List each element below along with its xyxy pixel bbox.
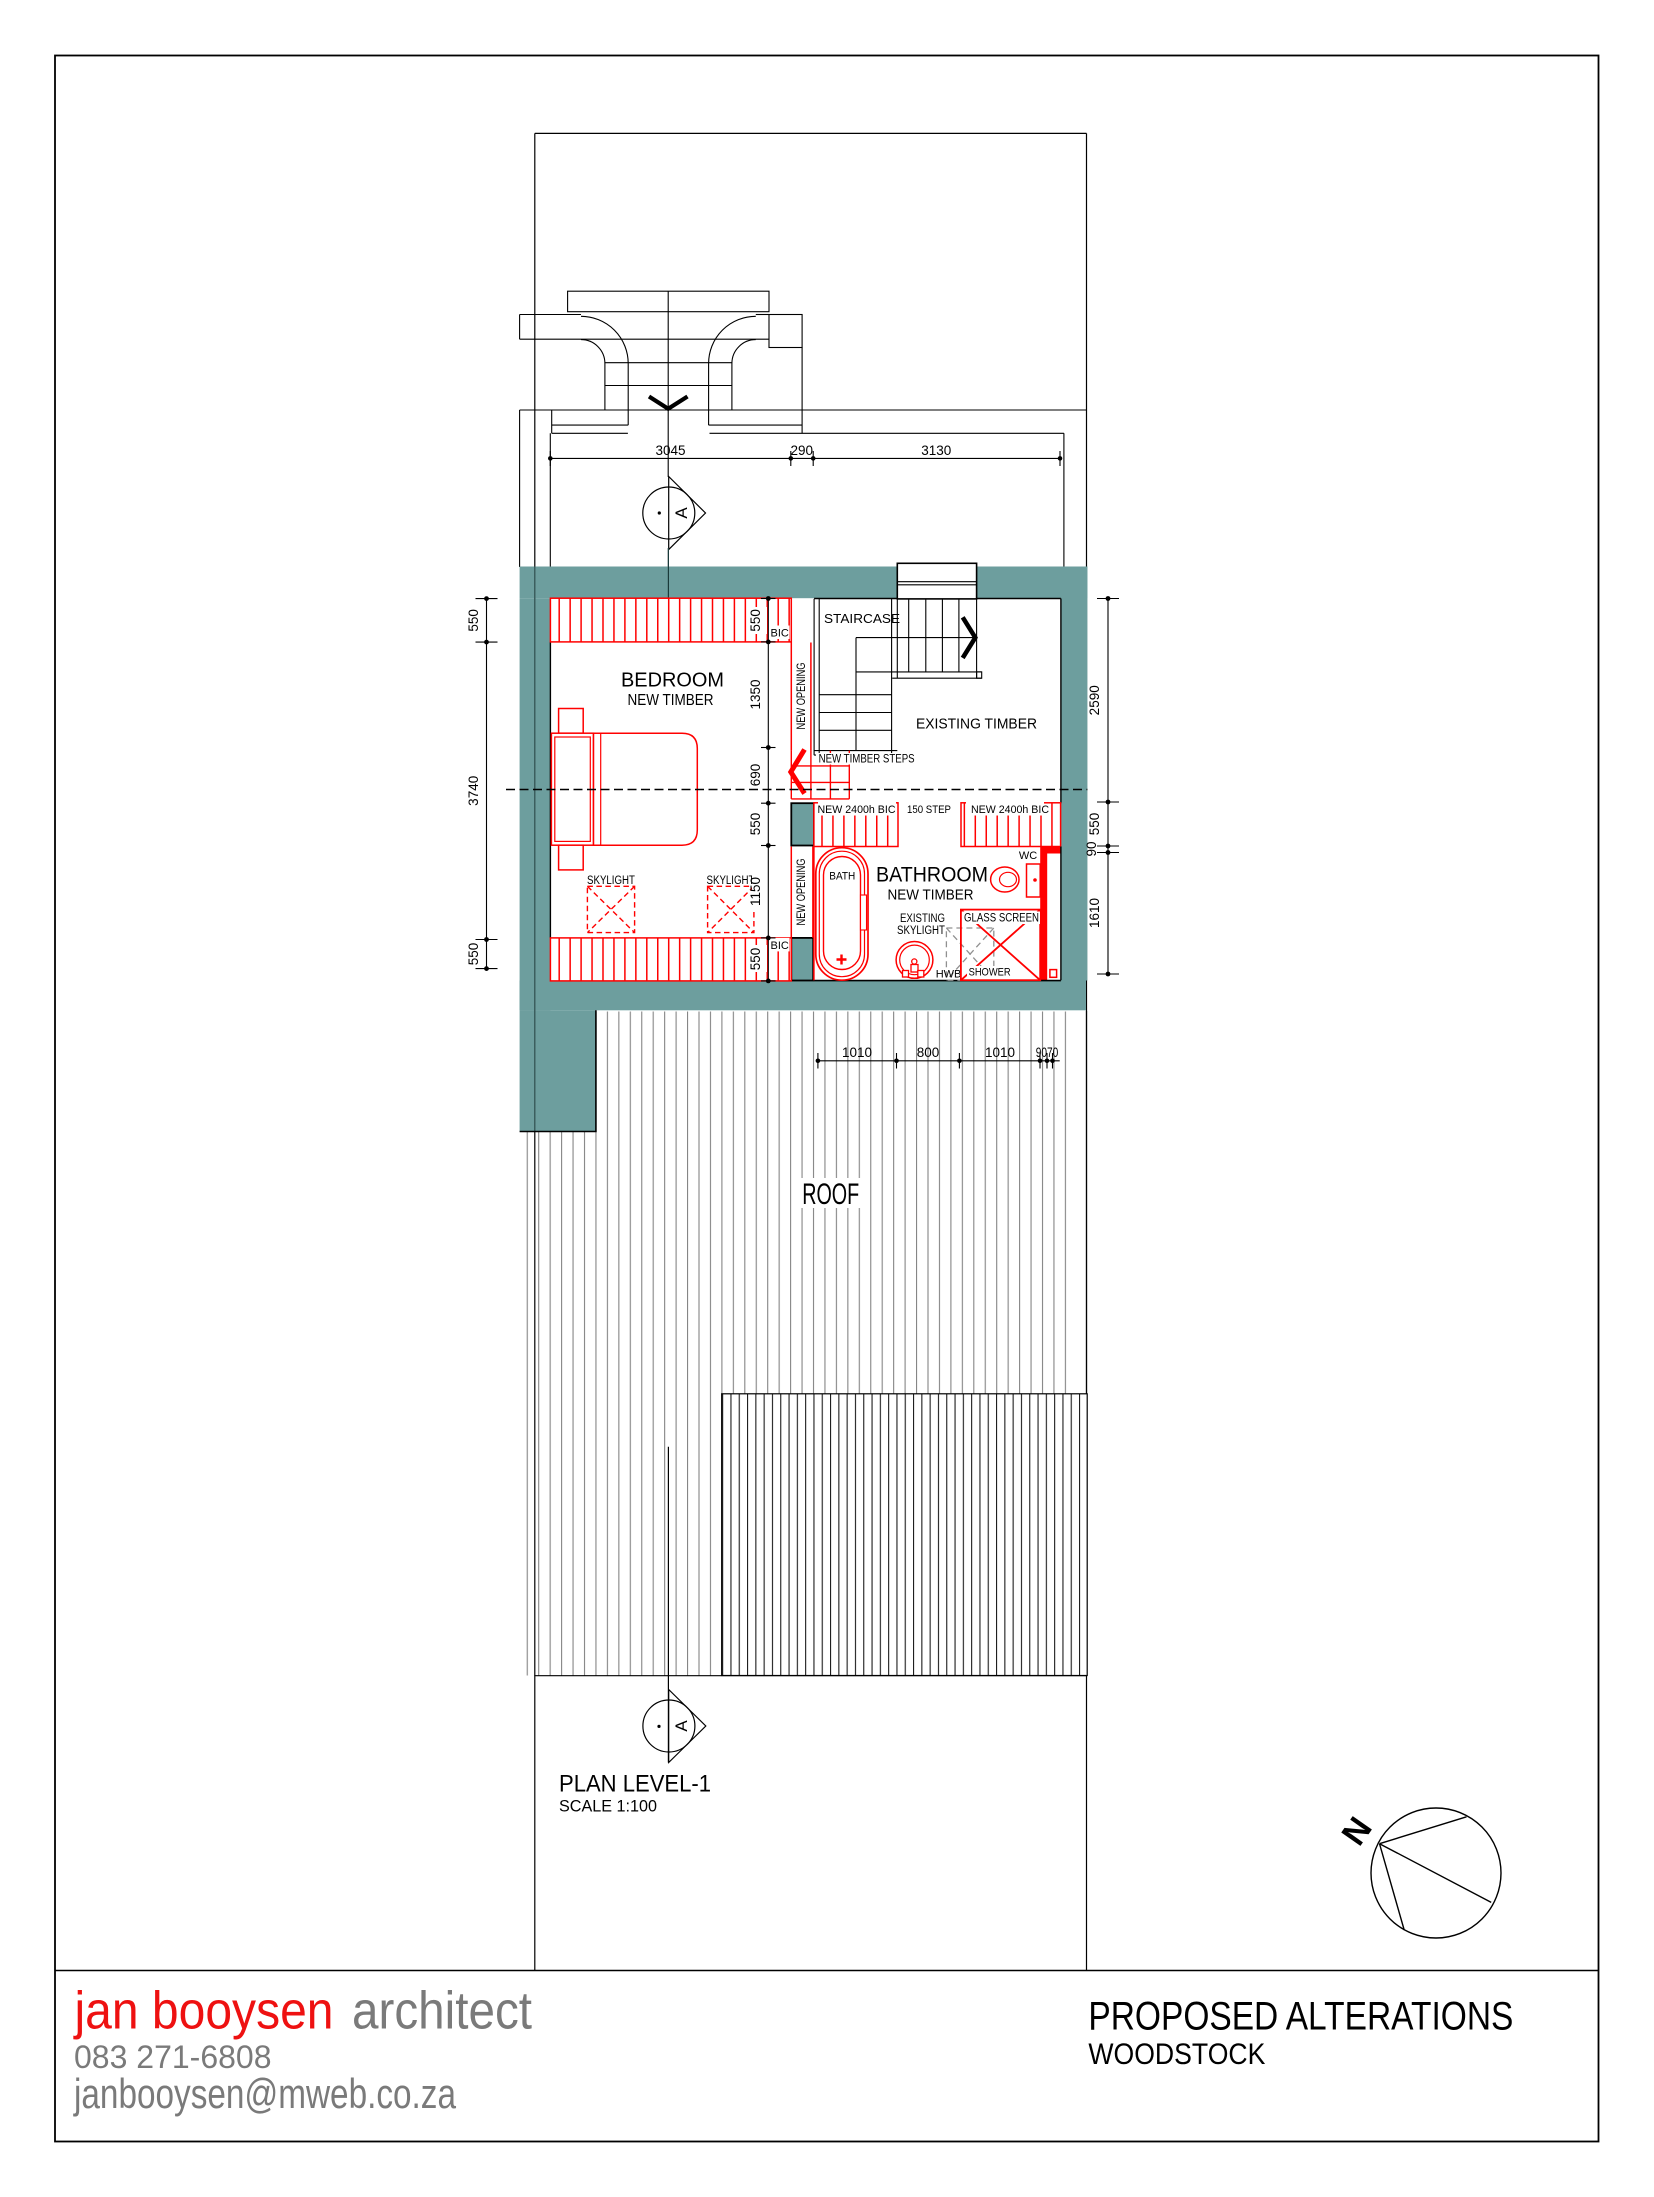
svg-text:SHOWER: SHOWER — [969, 967, 1011, 979]
svg-text:1610: 1610 — [1087, 898, 1102, 928]
svg-text:550: 550 — [1087, 813, 1102, 836]
svg-text:PLAN LEVEL-1: PLAN LEVEL-1 — [559, 1771, 711, 1798]
svg-text:550: 550 — [466, 943, 481, 966]
svg-text:jan booysen: jan booysen — [73, 1982, 334, 2041]
svg-text:290: 290 — [791, 443, 814, 458]
svg-text:PROPOSED ALTERATIONS: PROPOSED ALTERATIONS — [1088, 1995, 1513, 2039]
svg-text:NEW TIMBER STEPS: NEW TIMBER STEPS — [819, 754, 915, 766]
svg-text:SKYLIGHT: SKYLIGHT — [897, 925, 945, 937]
svg-text:550: 550 — [748, 609, 763, 632]
svg-text:550: 550 — [748, 948, 763, 971]
svg-text:90: 90 — [1084, 841, 1099, 856]
svg-text:EXISTING TIMBER: EXISTING TIMBER — [916, 716, 1037, 733]
svg-text:NEW OPENING: NEW OPENING — [796, 858, 808, 925]
svg-text:HWB: HWB — [936, 969, 962, 981]
svg-text:1150: 1150 — [748, 877, 763, 906]
svg-text:800: 800 — [917, 1045, 940, 1060]
svg-text:2590: 2590 — [1087, 685, 1102, 715]
svg-text:3740: 3740 — [466, 776, 481, 806]
svg-text:1010: 1010 — [985, 1045, 1015, 1060]
svg-text:SCALE 1:100: SCALE 1:100 — [559, 1797, 657, 1816]
svg-text:NEW OPENING: NEW OPENING — [796, 662, 808, 729]
svg-text:BIC: BIC — [771, 940, 789, 952]
svg-text:WC: WC — [1019, 850, 1037, 862]
svg-text:BATHROOM: BATHROOM — [876, 864, 988, 887]
svg-text:A: A — [672, 507, 691, 519]
svg-text:3045: 3045 — [655, 443, 685, 458]
svg-text:BATH: BATH — [829, 871, 855, 883]
svg-text:1010: 1010 — [842, 1045, 872, 1060]
svg-text:550: 550 — [748, 813, 763, 836]
svg-text:A: A — [672, 1720, 691, 1732]
svg-text:N: N — [1335, 1810, 1380, 1852]
svg-text:1350: 1350 — [748, 679, 763, 709]
svg-text:EXISTING: EXISTING — [900, 913, 945, 925]
svg-text:9070: 9070 — [1036, 1045, 1059, 1061]
svg-text:150 STEP: 150 STEP — [907, 804, 951, 816]
svg-text:NEW 2400h BIC: NEW 2400h BIC — [971, 804, 1049, 816]
svg-text:janbooysen@mweb.co.za: janbooysen@mweb.co.za — [72, 2070, 456, 2117]
svg-text:BEDROOM: BEDROOM — [621, 670, 724, 692]
svg-text:NEW 2400h BIC: NEW 2400h BIC — [818, 804, 896, 816]
svg-text:STAIRCASE: STAIRCASE — [824, 611, 900, 626]
svg-text:NEW TIMBER: NEW TIMBER — [628, 692, 714, 709]
svg-text:BIC: BIC — [771, 628, 789, 640]
svg-text:550: 550 — [466, 609, 481, 632]
svg-text:NEW TIMBER: NEW TIMBER — [888, 888, 974, 904]
svg-text:architect: architect — [352, 1982, 532, 2041]
svg-text:GLASS SCREEN: GLASS SCREEN — [964, 913, 1039, 925]
svg-text:ROOF: ROOF — [802, 1178, 859, 1211]
svg-text:SKYLIGHT: SKYLIGHT — [587, 875, 635, 887]
svg-text:WOODSTOCK: WOODSTOCK — [1088, 2038, 1265, 2071]
svg-text:690: 690 — [748, 764, 763, 787]
svg-text:3130: 3130 — [921, 443, 951, 458]
